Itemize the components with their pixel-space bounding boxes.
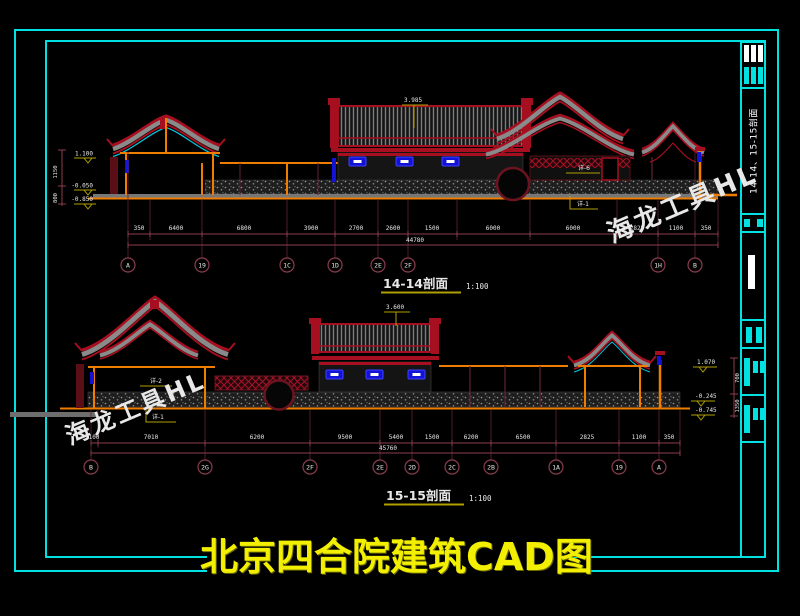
leader-label: 详-1 xyxy=(577,200,589,208)
grid-bubble-label: B xyxy=(89,464,93,472)
ridge-ornament xyxy=(150,300,159,309)
dim-value: 6000 xyxy=(566,225,581,232)
vdim: 1150 xyxy=(53,165,59,178)
section-14-14-drawing: 3.985 xyxy=(53,93,762,294)
grid-bubble-label: B xyxy=(693,262,697,270)
dim-value: 6800 xyxy=(237,225,252,232)
grid-bubble-label: 1D xyxy=(331,262,339,270)
dim-value: 350 xyxy=(664,434,675,441)
grid-bubble-label: 2G xyxy=(201,464,209,472)
section-label: 14-14剖面 1:100 xyxy=(381,276,489,294)
total-dim: 44780 xyxy=(406,237,424,244)
section-15-15-drawing: 3.600 xyxy=(10,297,741,506)
grid-bubble-label: 2E xyxy=(374,262,382,270)
page-title: 北京四合院建筑CAD图 xyxy=(200,535,576,581)
grid-bubble-label: 2C xyxy=(448,464,456,472)
dim-value: 350 xyxy=(701,225,712,232)
grid-bubble-label: 1C xyxy=(283,262,291,270)
inner-border-bottom-left xyxy=(45,556,207,558)
leader-label: 详-6 xyxy=(578,164,590,172)
window xyxy=(442,157,459,166)
inner-border-bottom-right xyxy=(568,556,766,558)
grid-bubble-label: A xyxy=(657,464,661,472)
dim-value: 1500 xyxy=(425,225,440,232)
left-elevation-markers: 1150 800 1.100 -0.050 -0.850 xyxy=(53,150,96,209)
section-name: 15-15剖面 xyxy=(386,488,451,503)
grid-bubble-label: 19 xyxy=(198,262,206,270)
ground-slab xyxy=(93,194,718,198)
middle-hall xyxy=(309,318,441,392)
stone-wall xyxy=(205,180,718,194)
vdim: 1350 xyxy=(735,399,741,412)
section-scale: 1:100 xyxy=(469,494,492,503)
elevation-value: -0.050 xyxy=(71,183,93,190)
dim-value: 1100 xyxy=(669,225,684,232)
dim-value: 7010 xyxy=(144,434,159,441)
main-hall xyxy=(328,98,533,182)
grid-bubble-label: 2B xyxy=(487,464,495,472)
grid-bubble-label: 1H xyxy=(654,262,662,270)
dim-value: 5400 xyxy=(389,434,404,441)
grid-bubble-label: 2D xyxy=(408,464,416,472)
window xyxy=(366,370,383,379)
blue-column-accent xyxy=(90,372,94,384)
section-name: 14-14剖面 xyxy=(383,276,448,291)
blue-column-accent xyxy=(332,158,336,182)
roof-elevation-flag: 3.600 xyxy=(384,304,410,326)
dim-value: 1100 xyxy=(632,434,647,441)
dim-value: 350 xyxy=(134,225,145,232)
dim-value: 2600 xyxy=(386,225,401,232)
dimension-row: 100 7010 6200 9500 5400 1500 6200 6500 2… xyxy=(89,434,680,456)
eave-band xyxy=(312,356,439,360)
vdim: 700 xyxy=(735,373,741,383)
grid-bubble-label: 2F xyxy=(404,262,412,270)
cad-drawing-svg: 3.985 xyxy=(0,0,800,530)
dim-value: 6400 xyxy=(169,225,184,232)
elevation-value: 1.070 xyxy=(697,359,715,366)
cad-canvas: 14-14、15-15剖面 xyxy=(0,0,800,616)
outer-border-bottom-left xyxy=(14,570,207,572)
dim-value: 2825 xyxy=(580,434,595,441)
dim-value: 6500 xyxy=(516,434,531,441)
elevation-value: -0.245 xyxy=(695,393,717,400)
flag-value: 3.985 xyxy=(404,97,422,104)
dim-value: 9500 xyxy=(338,434,353,441)
grid-bubble-label: 19 xyxy=(615,464,623,472)
lattice-band xyxy=(215,376,308,390)
dim-value: 6200 xyxy=(250,434,265,441)
dim-value: 6200 xyxy=(464,434,479,441)
dim-value: 6000 xyxy=(486,225,501,232)
doorway xyxy=(602,158,618,180)
elevation-value: -0.745 xyxy=(695,407,717,414)
elevation-value: -0.850 xyxy=(71,196,93,203)
outer-border-bottom-right xyxy=(568,570,779,572)
right-elevation-markers: 700 1350 1.070 -0.245 -0.745 xyxy=(691,358,741,420)
section-scale: 1:100 xyxy=(466,282,489,291)
grid-bubble-label: 2F xyxy=(306,464,314,472)
grid-bubble-label: A xyxy=(126,262,130,270)
section-label: 15-15剖面 1:100 xyxy=(384,488,492,506)
dim-value: 3900 xyxy=(304,225,319,232)
vdim: 800 xyxy=(53,193,59,203)
window xyxy=(349,157,366,166)
flag-value: 3.600 xyxy=(386,304,404,311)
grid-bubbles: A 19 1C 1D 2E 2F 1H B xyxy=(121,258,702,272)
window xyxy=(326,370,343,379)
elevation-value: 1.100 xyxy=(75,151,93,158)
grid-bubbles: B 2G 2F 2E 2D 2C 2B 1A 19 A xyxy=(84,460,666,474)
moon-gate xyxy=(497,168,529,200)
total-dim: 45760 xyxy=(379,445,397,452)
window xyxy=(396,157,413,166)
dim-value: 1500 xyxy=(425,434,440,441)
grid-bubble-label: 2E xyxy=(376,464,384,472)
moon-gate xyxy=(265,381,294,410)
dim-value: 2700 xyxy=(349,225,364,232)
window xyxy=(408,370,425,379)
grid-bubble-label: 1A xyxy=(552,464,560,472)
